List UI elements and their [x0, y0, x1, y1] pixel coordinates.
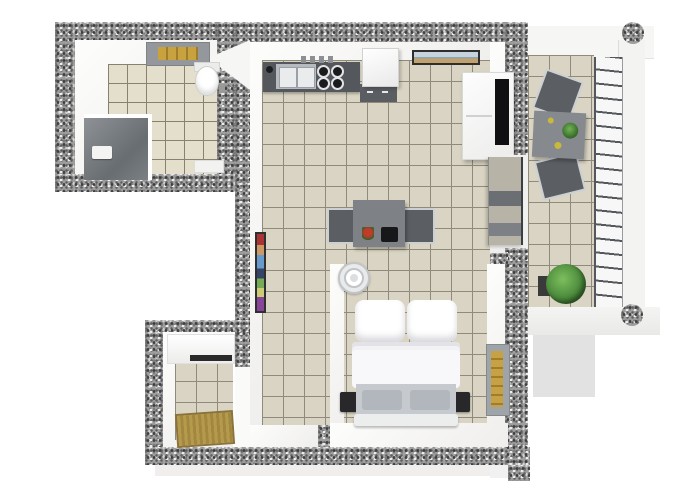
wardrobe-mirror-panel — [495, 79, 509, 145]
hall-door-opening — [235, 367, 250, 447]
table-plant — [562, 122, 579, 139]
ceiling-lamp — [338, 262, 370, 294]
sink-basin-right — [297, 67, 315, 88]
cooktop-burner — [317, 77, 330, 90]
cabinet-handle — [367, 91, 373, 93]
wardrobe — [462, 72, 514, 160]
double-sink — [276, 64, 316, 89]
ceiling-lamp-ring — [344, 268, 364, 288]
tall-painting-canvas — [257, 234, 264, 311]
round-column-bottom — [621, 304, 643, 326]
wall-bottom — [145, 447, 530, 465]
bed-base-panel — [410, 390, 450, 410]
door-glass-band — [489, 223, 521, 236]
counter-jars — [301, 56, 337, 63]
bed-footboard — [354, 414, 458, 426]
floor-plan — [0, 0, 700, 500]
wall-picture-landscape — [412, 50, 480, 65]
wall-right-notch — [508, 465, 530, 481]
gold-wall-window — [491, 351, 503, 407]
pillow-right — [407, 300, 457, 342]
bistro-table — [532, 111, 586, 160]
dining-table — [353, 200, 405, 247]
corner-slab-shadow — [490, 465, 508, 478]
pillow-left — [355, 300, 405, 342]
tall-painting — [255, 232, 266, 313]
table-plate — [554, 142, 561, 149]
ceiling-skylight-glass — [158, 47, 198, 60]
flower-on-table — [362, 227, 374, 241]
shower-head — [92, 146, 112, 159]
wall-picture-canvas — [414, 52, 478, 63]
cabinet-handle — [382, 91, 388, 93]
dining-chair-right — [403, 208, 435, 244]
sliding-glass-door — [488, 157, 523, 245]
building-drop-shadow — [155, 465, 505, 476]
laptop-on-table — [381, 227, 398, 242]
ceiling-lamp-center — [350, 274, 358, 282]
double-bed — [352, 296, 460, 428]
kitchen-faucet — [266, 66, 273, 73]
table-plate — [548, 117, 554, 123]
balcony-railing — [594, 57, 623, 307]
sideboard-open-slot — [190, 355, 232, 361]
duvet — [352, 342, 460, 388]
toilet-brush — [219, 84, 225, 93]
shower-cabin — [84, 114, 152, 180]
cooktop-burner — [331, 77, 344, 90]
round-column-top — [622, 22, 644, 44]
bed-base-panel — [362, 390, 402, 410]
wardrobe-door-seam — [466, 115, 492, 117]
potted-plant — [546, 264, 586, 304]
gold-wall-window-frame — [486, 344, 510, 416]
wall-hall-top — [145, 320, 250, 332]
wall-bathroom-right — [217, 22, 237, 174]
wall-top — [55, 22, 528, 42]
bedroom-face-left — [330, 264, 344, 447]
toilet — [195, 66, 219, 96]
balcony-drop-shadow — [533, 333, 595, 397]
sideboard-cabinet — [167, 334, 235, 364]
corridor-face-bottom — [250, 425, 318, 447]
doormat — [175, 410, 235, 448]
sink-basin-left — [279, 67, 297, 88]
bath-mat — [194, 160, 224, 173]
wall-hall-left — [145, 332, 163, 463]
fridge — [362, 48, 399, 87]
wall-bathroom-left — [55, 22, 75, 192]
door-glass-band — [489, 191, 521, 206]
bed-base — [356, 384, 456, 414]
